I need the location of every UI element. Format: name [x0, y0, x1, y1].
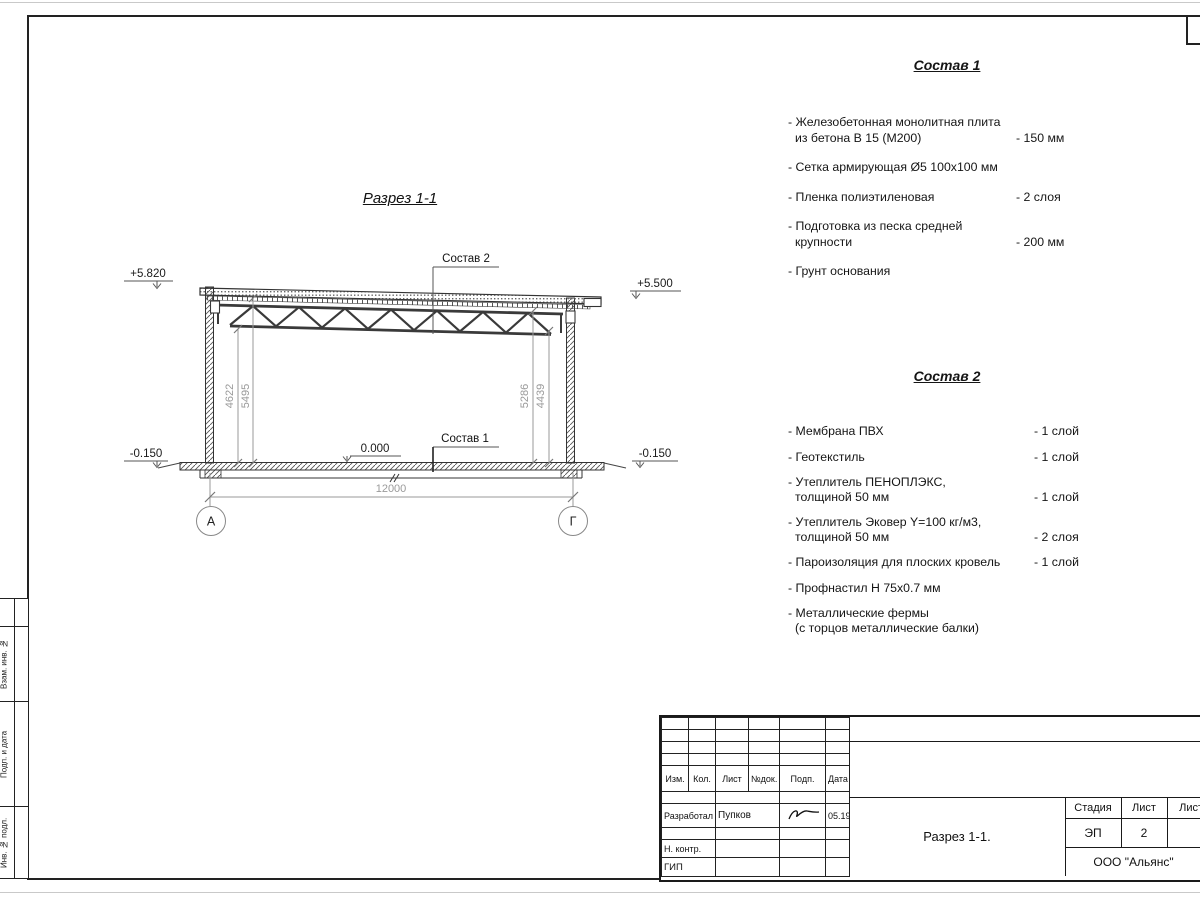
developed-date: 05.19 [826, 804, 850, 828]
elevation-bottom-right: -0.150 [639, 448, 672, 460]
margin-box-inv-podl: Инв. № подл. [0, 806, 29, 879]
axis-right-label: Г [570, 515, 577, 529]
item-text: - Пленка полиэтиленовая [788, 190, 1016, 206]
ground-line-left [158, 463, 180, 468]
col-header-ndok: №док. [749, 766, 780, 792]
item-text: толщиной 50 мм [788, 490, 1034, 505]
elevation-top-left: +5.820 [130, 268, 166, 280]
list-item: - Пленка полиэтиленовая - 2 слоя [788, 190, 1106, 206]
elevation-bottom-right-mark [632, 461, 678, 468]
margin-label-inv-podl: Инв. № подл. [0, 807, 14, 878]
composition-2-title: Состав 2 [788, 368, 1106, 384]
signature-cell [780, 804, 826, 828]
margin-label-vzam: Взам. инв. № [0, 627, 14, 702]
dim-left-outer: 5495 [240, 384, 252, 408]
item-text: - Сетка армирующая Ø5 100х100 мм [788, 160, 1088, 176]
leader-roof-label: Состав 2 [442, 253, 490, 265]
margin-box-vzam: Взам. инв. № [0, 626, 29, 703]
item-value: - 1 слой [1034, 555, 1079, 570]
roof-edge-beam [584, 299, 601, 307]
item-value: - 150 мм [1016, 131, 1064, 147]
list-item: - Мембрана ПВХ - 1 слой [788, 424, 1106, 439]
dim-span: 12000 [376, 483, 407, 495]
elevation-top-right-mark [630, 291, 681, 299]
margin-box-podp-data: Подп. и дата [0, 701, 29, 808]
composition-1-title: Состав 1 [788, 57, 1106, 73]
list-item: - Металлические фермы (с торцов металлич… [788, 606, 1106, 635]
sheet-label: Лист [1121, 798, 1167, 818]
elevation-floor-mark [343, 456, 401, 462]
elevation-bottom-left-mark [124, 461, 168, 468]
col-header-list: Лист [716, 766, 749, 792]
item-text: - Железобетонная монолитная плита [788, 115, 1016, 131]
elevation-floor: 0.000 [361, 443, 390, 455]
item-text: - Пароизоляция для плоских кровель [788, 555, 1034, 570]
list-item: - Сетка армирующая Ø5 100х100 мм [788, 160, 1106, 176]
col-header-podp: Подп. [780, 766, 826, 792]
list-item: - Профнастил Н 75х0.7 мм [788, 581, 1106, 596]
axis-bubbles: А Г [197, 507, 588, 536]
list-item: - Утеплитель Эковер Y=100 кг/м3, толщино… [788, 515, 1106, 544]
section-drawing: text{font-family:"Liberation Sans",sans-… [100, 240, 700, 550]
item-text: - Мембрана ПВХ [788, 424, 1034, 439]
item-text: - Грунт основания [788, 264, 1016, 280]
company-name: ООО "Альянс" [1065, 847, 1200, 876]
ground-line-right [604, 463, 626, 468]
item-value: - 1 слой [1034, 424, 1079, 439]
elevation-top-left-mark [124, 281, 173, 289]
gip-label: ГИП [662, 858, 716, 877]
stage-value: ЭП [1065, 819, 1121, 846]
list-item: - Подготовка из песка средней крупности … [788, 219, 1106, 250]
titleblock-line [849, 741, 1200, 742]
col-header-izm: Изм. [662, 766, 689, 792]
floor-slab [158, 463, 626, 483]
corner-stamp-box [1186, 15, 1200, 45]
elevation-bottom-left: -0.150 [130, 448, 163, 460]
item-text: толщиной 50 мм [788, 530, 1034, 545]
item-value: - 2 слоя [1016, 190, 1061, 206]
ncontr-label: Н. контр. [662, 840, 716, 858]
list-item: - Железобетонная монолитная плита из бет… [788, 115, 1106, 146]
item-text: - Подготовка из песка средней [788, 219, 1016, 235]
stage-label: Стадия [1065, 798, 1121, 818]
item-value: - 200 мм [1016, 235, 1064, 251]
dim-right-outer: 5286 [519, 384, 531, 408]
paper-edge-bottom [0, 892, 1200, 893]
axis-left-label: А [207, 515, 216, 529]
list-item: - Геотекстиль - 1 слой [788, 450, 1106, 465]
sheet-value: 2 [1121, 819, 1167, 846]
item-value: - 2 слоя [1034, 530, 1079, 545]
developed-name: Пупков [716, 804, 780, 828]
margin-box-divider [14, 702, 15, 807]
vertical-dimensions [234, 294, 553, 467]
truss-bearing-left [211, 301, 220, 313]
leader-floor-label: Состав 1 [441, 433, 489, 445]
col-header-data: Дата [826, 766, 850, 792]
margin-label-podp-data: Подп. и дата [0, 702, 14, 807]
item-text: - Утеплитель Эковер Y=100 кг/м3, [788, 515, 1034, 530]
developed-label: Разработал [662, 804, 716, 828]
composition-2: Состав 2 - Мембрана ПВХ - 1 слой - Геоте… [788, 368, 1106, 646]
document-name: Разрез 1-1. [849, 797, 1065, 876]
item-text: (с торцов металлические балки) [788, 621, 1034, 636]
list-item: - Пароизоляция для плоских кровель - 1 с… [788, 555, 1106, 570]
item-text: - Геотекстиль [788, 450, 1034, 465]
item-text: - Профнастил Н 75х0.7 мм [788, 581, 1034, 596]
title-block: Изм. Кол. Лист №док. Подп. Дата Разработ… [659, 715, 1200, 882]
dim-left-inner: 4622 [224, 384, 236, 408]
margin-box-divider [14, 807, 15, 878]
revision-table: Изм. Кол. Лист №док. Подп. Дата Разработ… [661, 717, 850, 877]
sheets-label: Листов [1167, 798, 1200, 818]
elevation-top-right: +5.500 [637, 278, 673, 290]
col-header-kol: Кол. [689, 766, 716, 792]
truss-bearing-right [566, 311, 575, 323]
paper-edge-top [0, 2, 1200, 3]
margin-box-divider [14, 627, 15, 702]
margin-box-divider [14, 599, 15, 627]
list-item: - Утеплитель ПЕНОПЛЭКС, толщиной 50 мм -… [788, 475, 1106, 504]
dim-right-inner: 4439 [535, 384, 547, 408]
item-value: - 1 слой [1034, 490, 1079, 505]
dimension-ticks [234, 294, 553, 467]
section-title: Разрез 1-1 [300, 190, 500, 207]
blueprint-page: { "drawing": { "title": "Разрез 1-1", "e… [0, 0, 1200, 900]
footing-left [205, 470, 221, 478]
composition-1: Состав 1 - Железобетонная монолитная пли… [788, 57, 1106, 294]
footing-right [561, 470, 577, 478]
item-text: - Утеплитель ПЕНОПЛЭКС, [788, 475, 1034, 490]
item-text: из бетона В 15 (М200) [788, 131, 1016, 147]
margin-box-empty [0, 598, 29, 628]
signature-icon [783, 807, 823, 823]
item-value: - 1 слой [1034, 450, 1079, 465]
list-item: - Грунт основания [788, 264, 1106, 280]
item-text: - Металлические фермы [788, 606, 1034, 621]
item-text: крупности [788, 235, 1016, 251]
